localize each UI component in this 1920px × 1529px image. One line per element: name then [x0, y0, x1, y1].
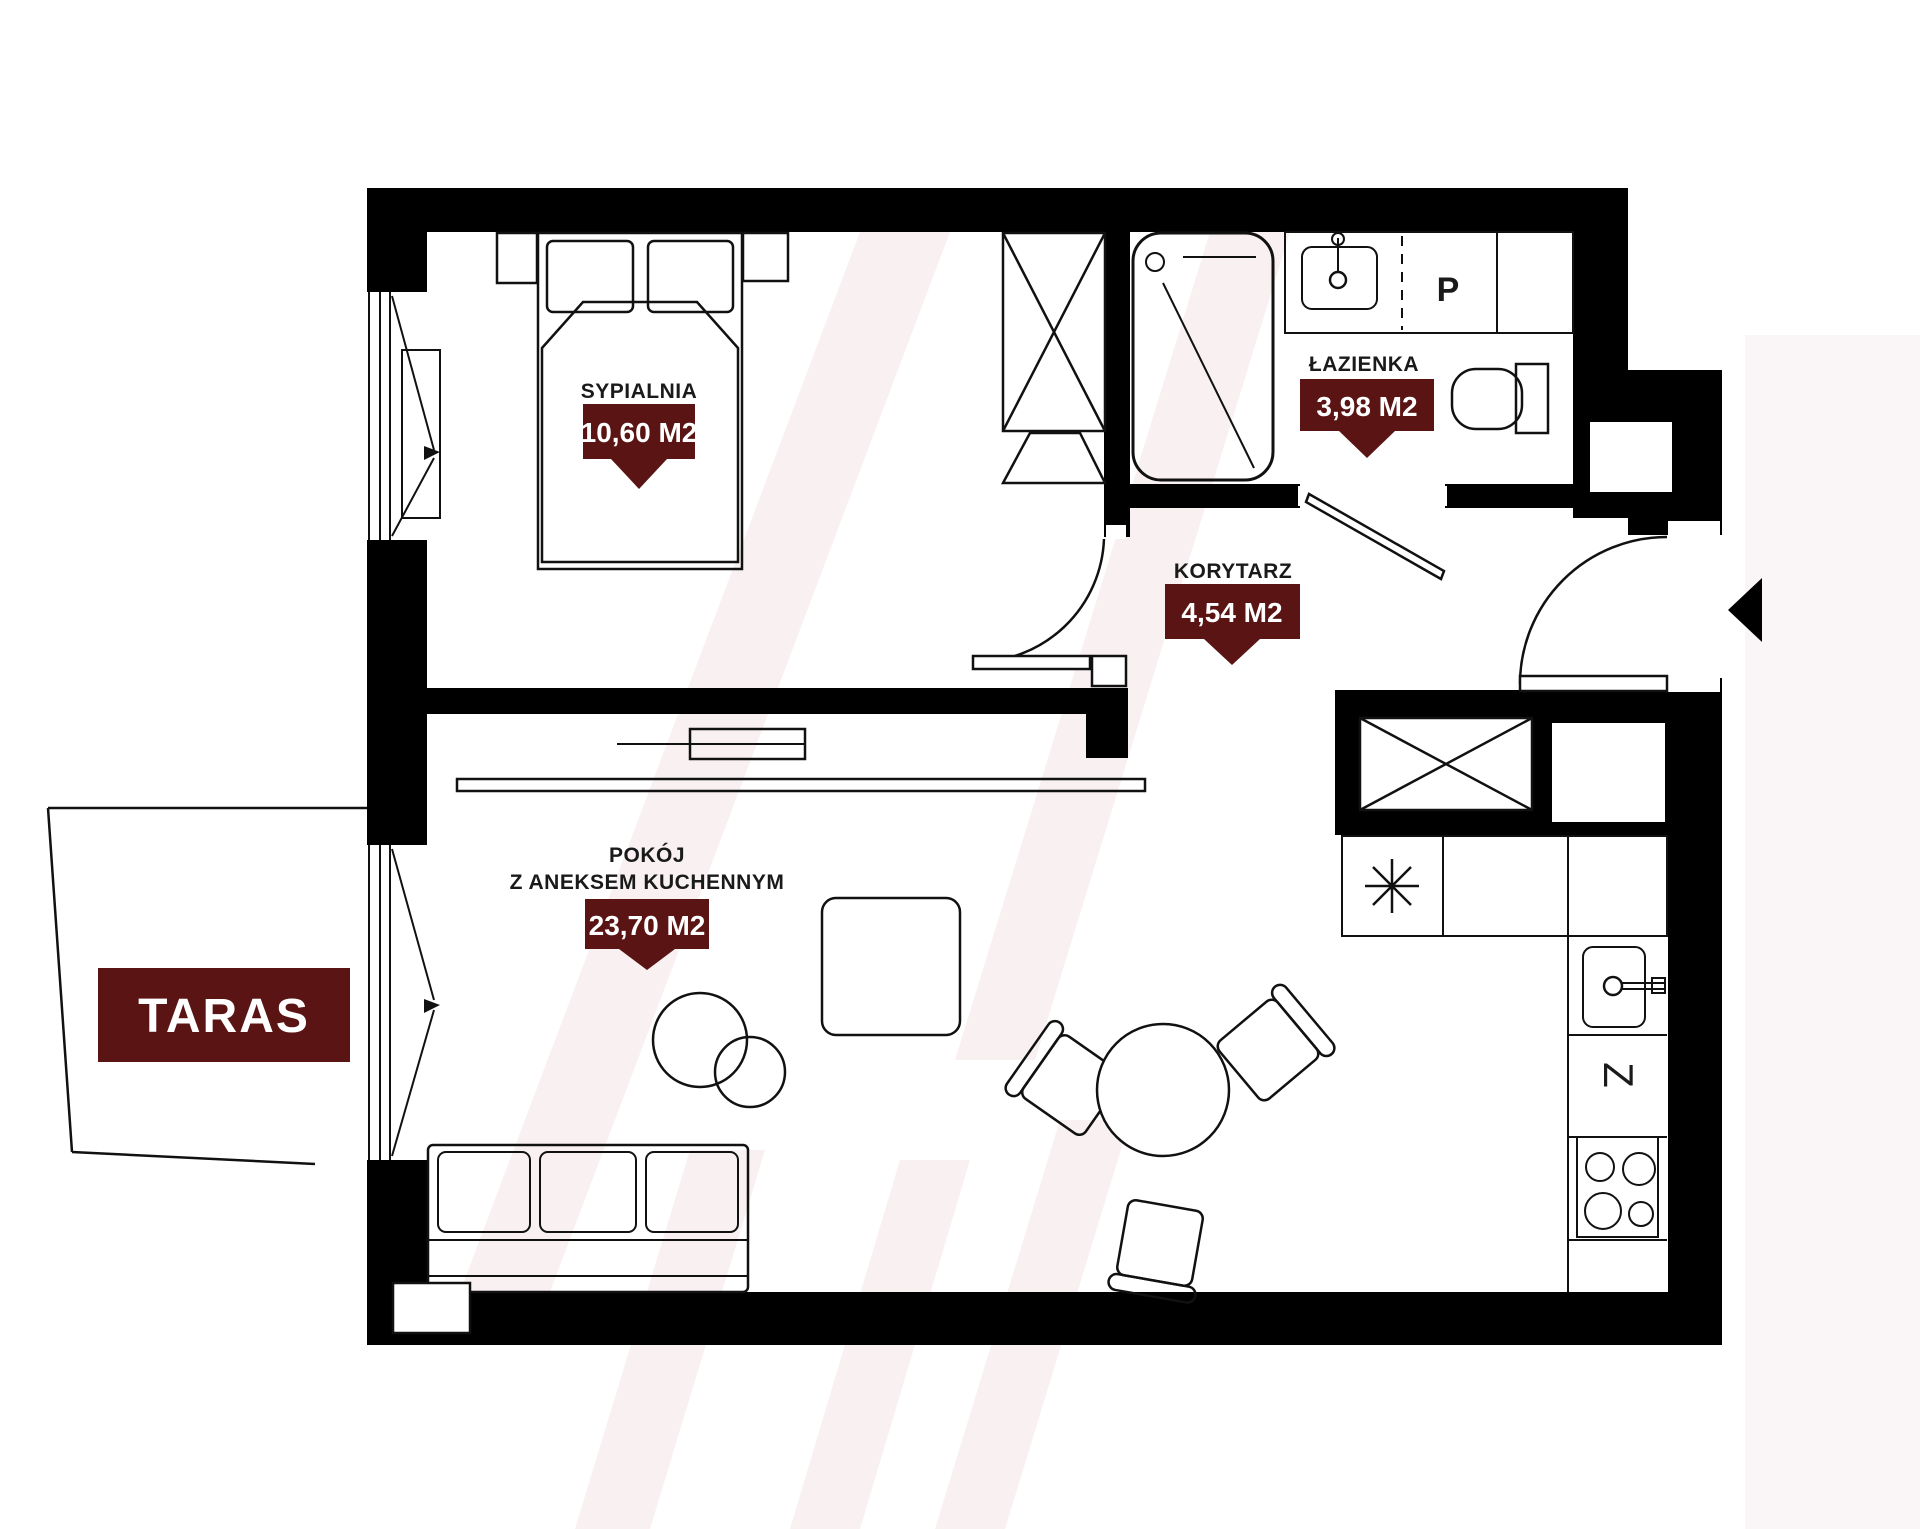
label-lazienka: ŁAZIENKA 3,98 M2	[1300, 353, 1434, 458]
door-bedroom-hinge	[1092, 656, 1126, 686]
hood-asterisk-icon	[1365, 859, 1419, 913]
door-entrance-leaf	[1520, 676, 1667, 691]
hob-burner-3	[1585, 1193, 1621, 1229]
washer-label: P	[1437, 271, 1460, 309]
door-entrance-swing-arc	[1520, 537, 1667, 684]
dining-table	[1097, 1024, 1229, 1156]
nightstand-left	[497, 233, 537, 283]
bathtub-drain-icon	[1146, 253, 1164, 271]
kitchen-faucet-base	[1652, 978, 1665, 993]
wardrobe-x-icon	[1003, 233, 1105, 431]
room-name-korytarz: KORYTARZ	[1174, 560, 1292, 583]
watermark-right-band	[1745, 335, 1920, 1529]
wall-top	[367, 188, 1628, 232]
door-entrance-threshold-bottom	[1668, 678, 1720, 692]
window-bedroom	[369, 292, 440, 540]
floor-plan-svg: TARAS	[0, 0, 1920, 1529]
door-bathroom-leaf	[1306, 494, 1444, 579]
kitchen-faucet-arm	[1621, 983, 1664, 989]
hob-burner-2	[1623, 1153, 1655, 1185]
square-table	[822, 898, 960, 1035]
terrace: TARAS	[48, 808, 378, 1164]
room-name-pokoj-line1: POKÓJ	[609, 843, 685, 867]
room-name-sypialnia: SYPIALNIA	[581, 380, 698, 403]
area-korytarz: 4,54 M2	[1181, 597, 1282, 628]
room-name-pokoj-line2: Z ANEKSEM KUCHENNYM	[510, 871, 785, 894]
sofa-side-table	[393, 1283, 470, 1333]
wall-left-mid	[367, 540, 427, 845]
label-sypialnia: SYPIALNIA 10,60 M2	[581, 380, 698, 489]
hob-burner-4	[1629, 1202, 1653, 1226]
window-livingroom-arrow-icon	[424, 999, 440, 1013]
window-bedroom-sash	[392, 296, 434, 536]
kitchen-faucet-icon	[1604, 977, 1622, 995]
bedroom-radiator	[402, 350, 440, 518]
dining-chair-3	[1107, 1198, 1210, 1304]
nightstand-right	[743, 233, 788, 281]
area-lazienka: 3,98 M2	[1316, 391, 1417, 422]
window-livingroom	[369, 845, 440, 1160]
floor-plan-page: TARAS	[0, 0, 1920, 1529]
door-entrance	[1520, 521, 1762, 692]
door-bathroom	[1298, 486, 1447, 579]
door-bathroom-threshold-right	[1433, 486, 1447, 506]
wall-divider	[427, 688, 1128, 714]
wardrobe-front	[1003, 433, 1105, 483]
label-pokoj: POKÓJ Z ANEKSEM KUCHENNYM 23,70 M2	[510, 843, 785, 970]
window-bedroom-frame	[369, 292, 390, 540]
area-pokoj: 23,70 M2	[589, 910, 706, 941]
hob-burner-1	[1586, 1153, 1614, 1181]
wall-left-upper	[367, 188, 427, 292]
window-livingroom-frame	[369, 845, 390, 1160]
wall-bath-south-left	[1105, 484, 1300, 508]
toilet-bowl	[1452, 369, 1522, 429]
door-bedroom-leaf	[973, 656, 1090, 669]
door-bedroom-threshold	[1106, 525, 1126, 539]
wall-divider-pier	[1086, 714, 1128, 758]
wall-niche	[1590, 422, 1672, 492]
label-korytarz: KORYTARZ 4,54 M2	[1165, 560, 1300, 665]
coffee-table-small	[715, 1037, 785, 1107]
wall-bottom	[367, 1292, 1722, 1345]
kitchen-counter-dividers	[1443, 836, 1568, 1292]
terrace-label: TARAS	[138, 990, 310, 1043]
room-name-lazienka: ŁAZIENKA	[1309, 353, 1419, 376]
bath-faucet-icon	[1330, 272, 1346, 288]
kitchen: Z	[1342, 836, 1667, 1292]
shaft-niche	[1552, 723, 1665, 822]
coffee-table-large	[653, 993, 747, 1087]
area-sypialnia: 10,60 M2	[581, 417, 698, 448]
fridge-label: Z	[1595, 1062, 1642, 1088]
window-bedroom-arrow-icon	[424, 446, 440, 460]
door-entrance-threshold-top	[1668, 521, 1720, 535]
